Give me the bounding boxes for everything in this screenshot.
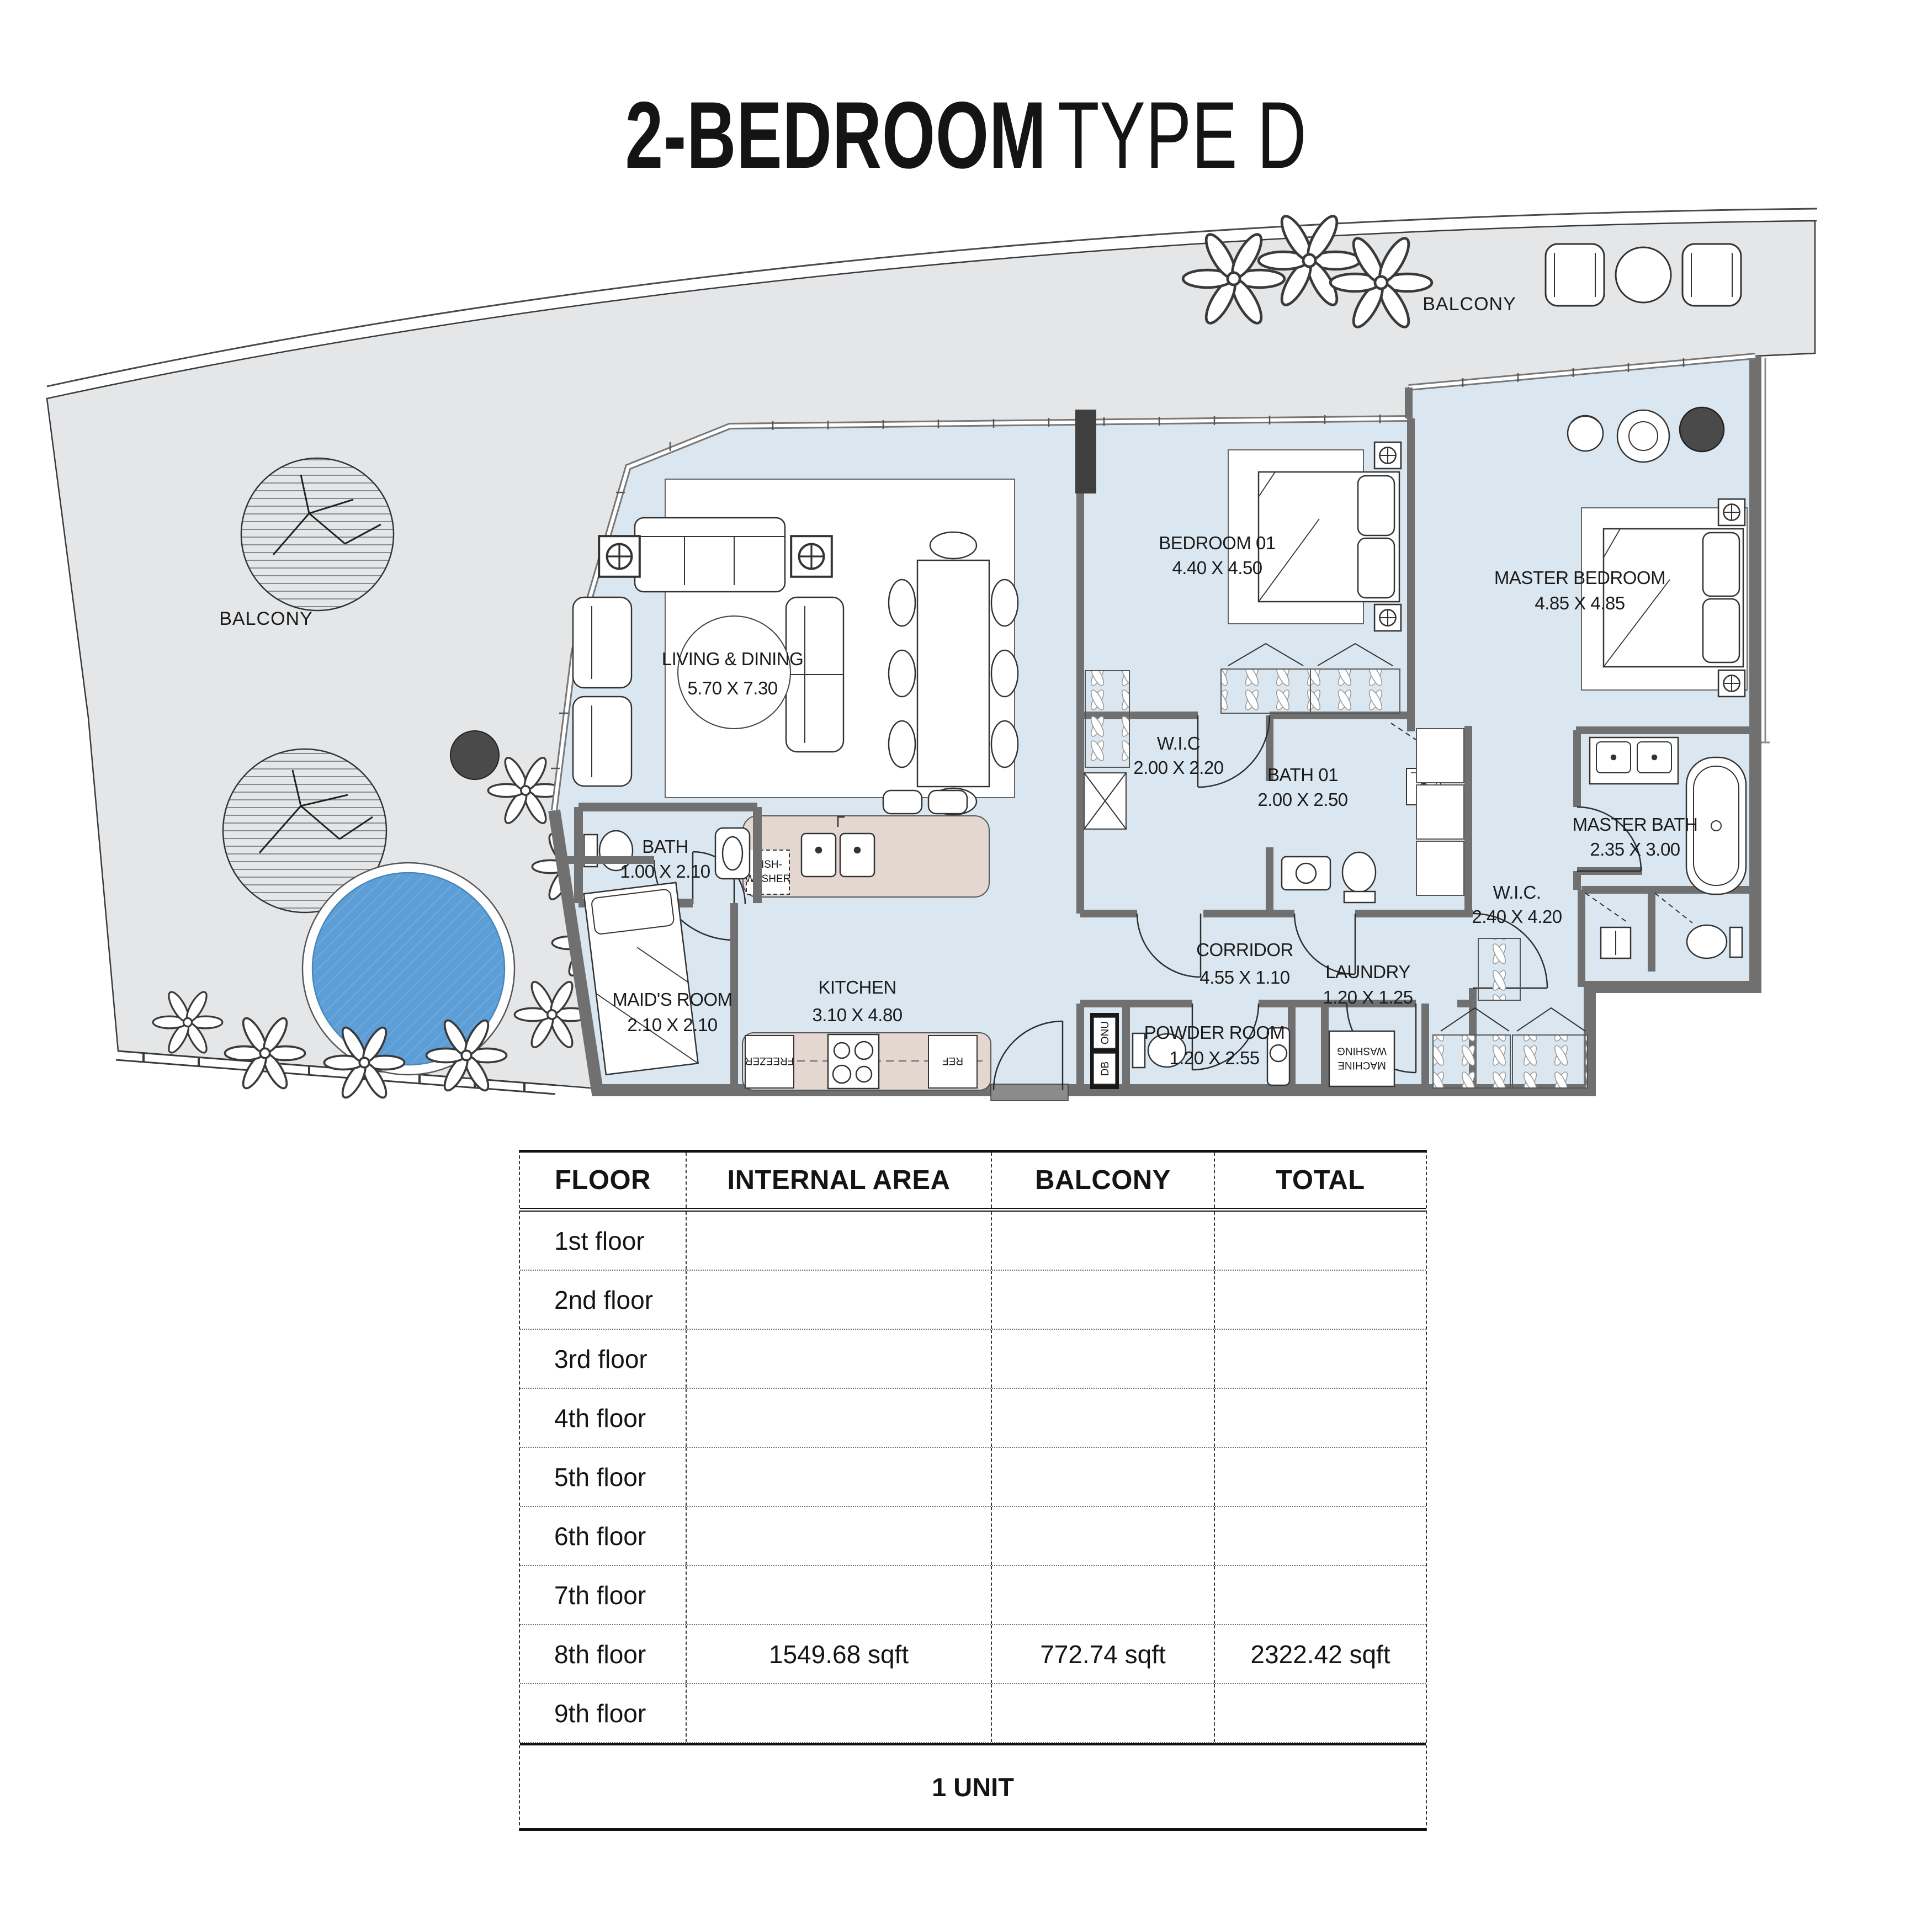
cell-internal [687, 1389, 992, 1447]
cell-floor: 6th floor [520, 1507, 687, 1565]
table-row: 7th floor [520, 1566, 1426, 1625]
unit-area: DISH- WASHER FREEZER [551, 356, 1755, 1101]
room-dims-masterbed: 4.85 X 4.85 [1535, 593, 1625, 613]
balcony-side-table [450, 731, 499, 779]
room-dims-powder: 1.20 X 2.55 [1169, 1048, 1259, 1068]
room-label-bath: BATH [642, 836, 688, 857]
cell-floor: 8th floor [520, 1625, 687, 1683]
wall-fin [1075, 410, 1096, 493]
cell-floor: 2nd floor [520, 1271, 687, 1329]
cell-floor: 9th floor [520, 1684, 687, 1742]
entry-threshold [991, 1084, 1068, 1101]
room-dims-living: 5.70 X 7.30 [687, 678, 777, 698]
cell-balcony [992, 1389, 1215, 1447]
cell-balcony [992, 1330, 1215, 1388]
washing-label-2: MACHINE [1337, 1059, 1386, 1071]
cell-balcony: 772.74 sqft [992, 1625, 1215, 1683]
room-dims-masterbath: 2.35 X 3.00 [1590, 839, 1680, 859]
cell-internal [687, 1448, 992, 1506]
cell-balcony [992, 1448, 1215, 1506]
cell-internal [687, 1271, 992, 1329]
header-total: TOTAL [1215, 1153, 1426, 1208]
table-row: 3rd floor [520, 1330, 1426, 1389]
floor-plan: BALCONY BALCONY [0, 0, 1932, 1151]
room-label-masterbath: MASTER BATH [1573, 814, 1698, 835]
cell-balcony [992, 1566, 1215, 1624]
room-dims-corridor: 4.55 X 1.10 [1199, 967, 1289, 988]
room-label-wic2: W.I.C. [1493, 882, 1541, 903]
side-parapet [1761, 358, 1770, 742]
cell-internal: 1549.68 sqft [687, 1625, 992, 1683]
room-dims-wic2: 2.40 X 4.20 [1472, 906, 1562, 927]
room-dims-bath01: 2.00 X 2.50 [1257, 789, 1347, 810]
washing-label-1: WASHING [1337, 1045, 1387, 1057]
cell-total [1215, 1212, 1426, 1270]
room-label-kitchen: KITCHEN [818, 977, 896, 997]
cell-balcony [992, 1684, 1215, 1742]
cell-total [1215, 1448, 1426, 1506]
room-label-bedroom01: BEDROOM 01 [1159, 533, 1275, 553]
table-row: 8th floor 1549.68 sqft 772.74 sqft 2322.… [520, 1625, 1426, 1684]
room-label-corridor: CORRIDOR [1196, 940, 1293, 960]
header-balcony: BALCONY [992, 1153, 1215, 1208]
dishwasher-label-2: WASHER [745, 873, 791, 885]
room-dims-bath: 1.00 X 2.10 [620, 861, 710, 882]
cell-floor: 3rd floor [520, 1330, 687, 1388]
cell-total [1215, 1271, 1426, 1329]
cell-internal [687, 1684, 992, 1742]
cell-balcony [992, 1212, 1215, 1270]
cell-total [1215, 1684, 1426, 1742]
room-label-masterbed: MASTER BEDROOM [1494, 567, 1665, 588]
page: 2-BEDROOMTYPE D [0, 0, 1932, 1932]
table-row: 5th floor [520, 1448, 1426, 1507]
table-row: 2nd floor [520, 1271, 1426, 1330]
table-row: 4th floor [520, 1389, 1426, 1448]
tree-top [241, 458, 394, 611]
header-internal: INTERNAL AREA [687, 1153, 992, 1208]
ref-label: REF [942, 1055, 963, 1066]
db-label: DB [1100, 1061, 1111, 1076]
table-header-row: FLOOR INTERNAL AREA BALCONY TOTAL [520, 1153, 1426, 1212]
cell-total: 2322.42 sqft [1215, 1625, 1426, 1683]
table-row: 9th floor [520, 1684, 1426, 1743]
cell-total [1215, 1566, 1426, 1624]
balcony-top-label: BALCONY [1423, 294, 1516, 315]
cell-total [1215, 1330, 1426, 1388]
cell-internal [687, 1507, 992, 1565]
cell-floor: 7th floor [520, 1566, 687, 1624]
cell-floor: 5th floor [520, 1448, 687, 1506]
onu-label: ONU [1100, 1021, 1111, 1044]
cell-internal [687, 1212, 992, 1270]
master-side-table [1680, 407, 1724, 452]
room-dims-wic1: 2.00 X 2.20 [1133, 757, 1223, 778]
cell-total [1215, 1389, 1426, 1447]
header-floor: FLOOR [520, 1153, 687, 1208]
cell-floor: 4th floor [520, 1389, 687, 1447]
room-label-powder: POWDER ROOM [1144, 1022, 1285, 1043]
cell-internal [687, 1330, 992, 1388]
cell-floor: 1st floor [520, 1212, 687, 1270]
table-row: 1st floor [520, 1212, 1426, 1271]
room-label-living: LIVING & DINING [662, 649, 804, 669]
room-label-laundry: LAUNDRY [1325, 962, 1410, 982]
freezer-label: FREEZER [745, 1055, 794, 1066]
room-dims-laundry: 1.20 X 1.25 [1323, 987, 1413, 1007]
room-label-bath01: BATH 01 [1267, 765, 1338, 785]
hall-cabinets [1416, 729, 1464, 895]
cell-total [1215, 1507, 1426, 1565]
area-table: FLOOR INTERNAL AREA BALCONY TOTAL 1st fl… [519, 1150, 1427, 1831]
room-label-wic1: W.I.C [1157, 733, 1200, 753]
room-dims-maids: 2.10 X 2.10 [627, 1015, 717, 1035]
room-label-maids: MAID'S ROOM [612, 989, 732, 1010]
cell-balcony [992, 1507, 1215, 1565]
cell-internal [687, 1566, 992, 1624]
balcony-left-label: BALCONY [219, 608, 313, 629]
top-balcony-seating [1546, 244, 1741, 306]
room-dims-bedroom01: 4.40 X 4.50 [1172, 558, 1262, 578]
table-footer: 1 UNIT [520, 1743, 1426, 1828]
cell-balcony [992, 1271, 1215, 1329]
room-dims-kitchen: 3.10 X 4.80 [812, 1005, 902, 1025]
table-row: 6th floor [520, 1507, 1426, 1566]
